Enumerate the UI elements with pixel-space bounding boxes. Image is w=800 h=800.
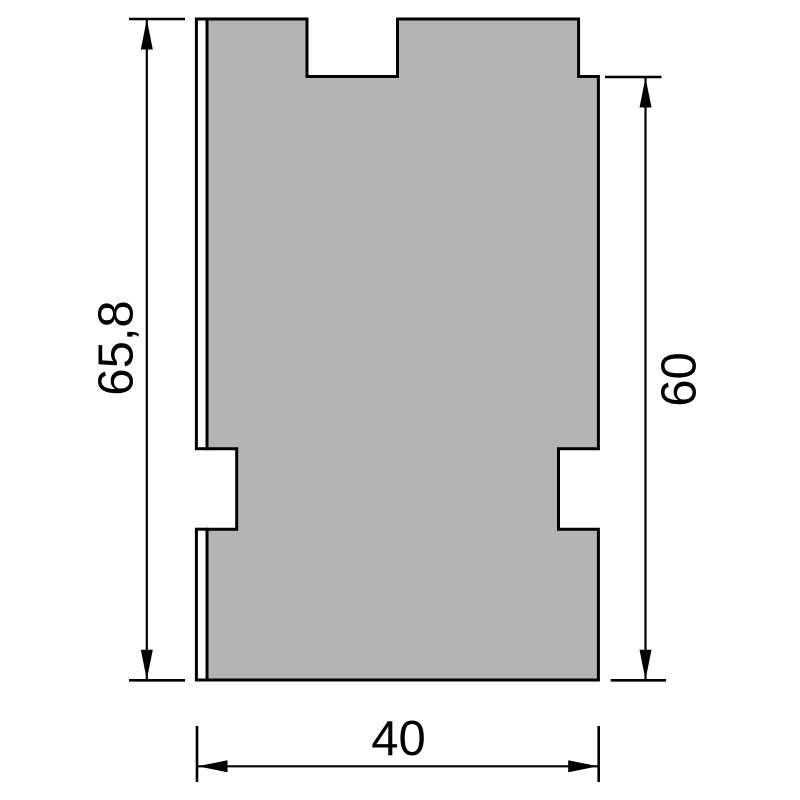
svg-text:60: 60 [653,352,707,407]
svg-text:65,8: 65,8 [89,300,143,395]
svg-text:40: 40 [371,712,426,766]
